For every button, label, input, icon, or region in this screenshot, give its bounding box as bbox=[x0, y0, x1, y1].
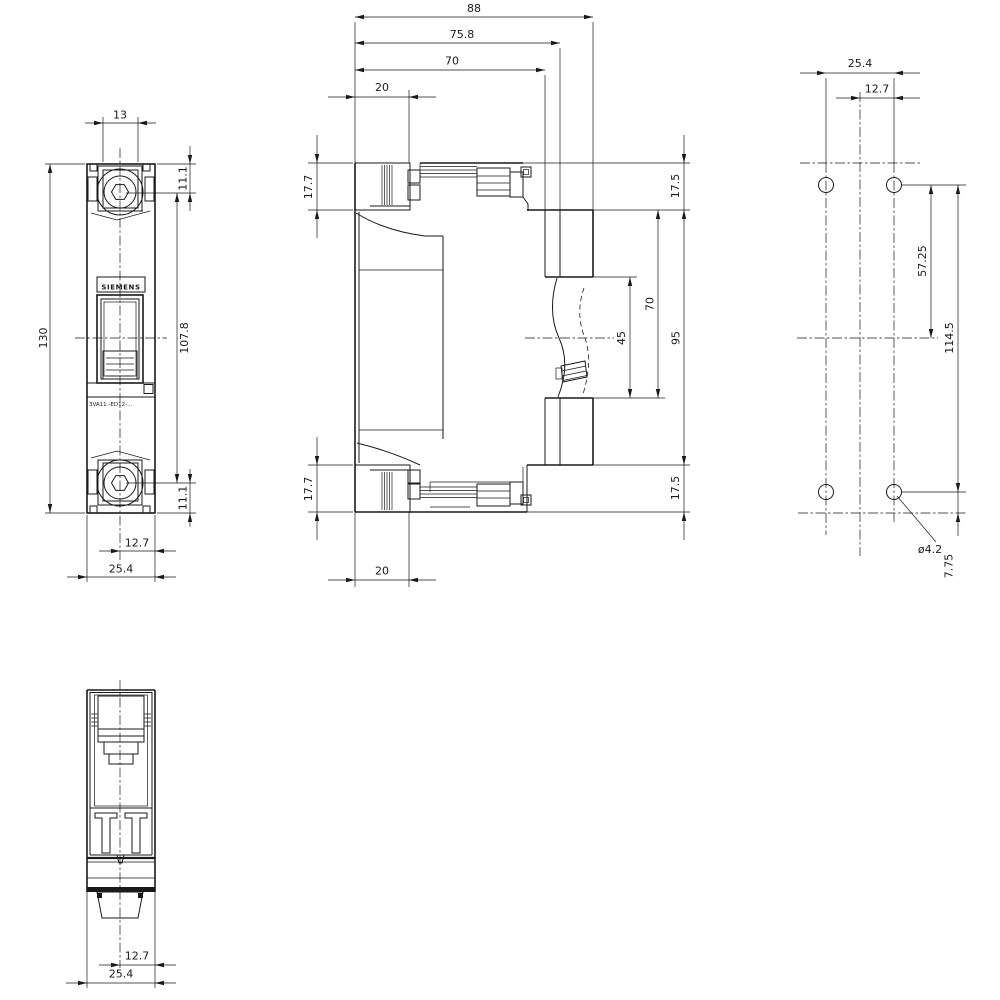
rail-slot-section bbox=[87, 808, 155, 892]
side-top-terminal bbox=[355, 163, 420, 210]
dim-rear-face-height: 95 bbox=[670, 331, 683, 345]
dim-depth-to-mounting-foot: 75.8 bbox=[450, 28, 475, 41]
dim-screw-offset-bottom: 11.1 bbox=[177, 486, 190, 511]
dim-top-step-height: 17.5 bbox=[669, 174, 682, 199]
dim-hole-diameter: ø4.2 bbox=[918, 543, 942, 556]
rail-edge-band bbox=[87, 887, 155, 892]
hole-diameter-leader bbox=[897, 496, 936, 542]
drill-plan-view: 25.4 12.7 57.25 114.5 7.75 ø4.2 bbox=[797, 57, 966, 578]
side-view: 88 75.8 70 20 17.7 17.7 bbox=[302, 2, 690, 587]
dim-terminal-height-bottom: 17.7 bbox=[302, 477, 315, 502]
front-dimensions: 13 11.1 130 107.8 11.1 12.7 25.4 bbox=[37, 109, 196, 583]
lower-rear-block bbox=[523, 398, 690, 512]
dim-bottom-overall-width: 25.4 bbox=[109, 968, 134, 981]
dim-bottom-center-to-edge: 12.7 bbox=[125, 950, 150, 963]
dim-overall-depth: 88 bbox=[467, 2, 481, 15]
dim-overall-width: 25.4 bbox=[109, 563, 134, 576]
dimension-drawing-page: SIEMENS 3VA11.-ED12-... 13 11.1 bbox=[0, 0, 1000, 1000]
side-dimensions: 88 75.8 70 20 17.7 17.7 bbox=[302, 2, 690, 587]
front-bottom-terminal bbox=[88, 451, 154, 513]
dim-terminal-depth-bottom: 20 bbox=[375, 565, 389, 578]
dim-hole-pitch-horizontal: 25.4 bbox=[848, 57, 873, 70]
drill-dimensions: 25.4 12.7 57.25 114.5 7.75 ø4.2 bbox=[800, 57, 960, 578]
side-bottom-terminal bbox=[355, 465, 531, 512]
dim-terminal-height-top: 17.7 bbox=[302, 175, 315, 200]
din-rail-section bbox=[430, 482, 521, 507]
test-button bbox=[144, 385, 153, 394]
bottom-dimensions: 12.7 25.4 bbox=[66, 950, 176, 986]
dim-overall-height: 130 bbox=[37, 328, 50, 349]
product-label: 3VA11.-ED12-... bbox=[89, 402, 133, 408]
dim-din-rail-recess: 45 bbox=[615, 331, 628, 345]
dim-rear-opening-span: 70 bbox=[644, 297, 657, 311]
dim-screw-spacing: 107.8 bbox=[178, 322, 191, 354]
dim-bottom-step-height: 17.5 bbox=[669, 476, 682, 501]
dim-body-depth: 70 bbox=[445, 55, 459, 68]
handle-shroud bbox=[91, 696, 151, 764]
dim-terminal-opening-width: 13 bbox=[113, 109, 127, 122]
dim-hole-pitch-vertical: 114.5 bbox=[943, 322, 956, 354]
dim-hole-row-to-center: 57.25 bbox=[916, 245, 929, 277]
dimension-drawing-canvas: SIEMENS 3VA11.-ED12-... 13 11.1 bbox=[0, 0, 1000, 1000]
dim-center-to-hole-column: 12.7 bbox=[865, 83, 890, 96]
dim-center-to-edge: 12.7 bbox=[125, 537, 150, 550]
front-label-band: 3VA11.-ED12-... bbox=[87, 383, 155, 408]
bottom-view: 12.7 25.4 bbox=[66, 680, 176, 988]
dim-hole-to-bottom-edge: 7.75 bbox=[943, 554, 956, 579]
front-top-terminal bbox=[88, 164, 154, 220]
brand-plate: SIEMENS bbox=[97, 277, 145, 292]
din-rail-recess bbox=[552, 278, 588, 397]
dim-screw-offset-top: 11.1 bbox=[177, 166, 190, 191]
dim-terminal-depth-top: 20 bbox=[375, 81, 389, 94]
upper-rear-block bbox=[527, 210, 637, 277]
brand-label: SIEMENS bbox=[101, 284, 140, 292]
front-view: SIEMENS 3VA11.-ED12-... 13 11.1 bbox=[37, 109, 196, 583]
